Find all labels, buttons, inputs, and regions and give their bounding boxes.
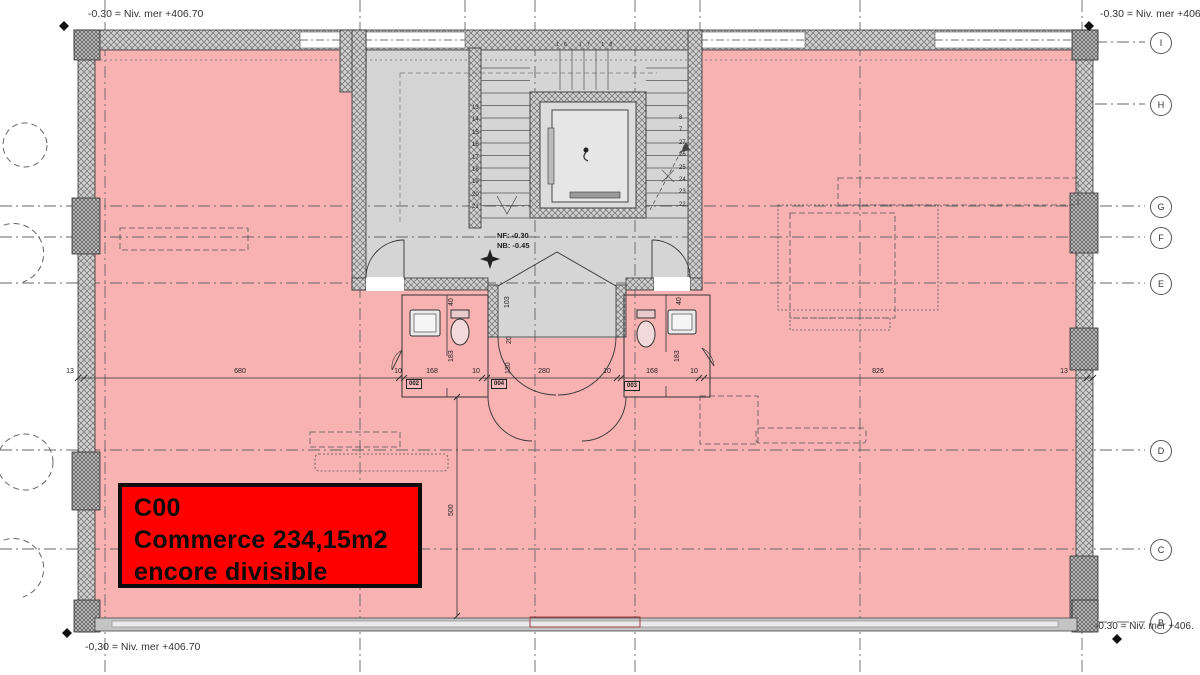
dim-label-v: 183 [674, 350, 681, 362]
floor-plan-canvas: -0.30 = Niv. mer +406.70 -0.30 = Niv. me… [0, 0, 1200, 675]
elevator-shaft [530, 92, 646, 218]
elevation-note-top-right: -0.30 = Niv. mer +406. [1100, 8, 1200, 20]
room-tag-002: 002 [406, 379, 422, 389]
grid-marker-f: F [1150, 227, 1172, 249]
grid-marker-g: G [1150, 196, 1172, 218]
elevation-note-top-left: -0.30 = Niv. mer +406.70 [88, 8, 203, 20]
grid-marker-i: I [1150, 32, 1172, 54]
grid-marker-d: D [1150, 440, 1172, 462]
dim-label-v: 183 [448, 350, 455, 362]
tree-circles [0, 123, 53, 597]
dim-label: 10 [603, 368, 611, 375]
dim-label-v: 500 [448, 504, 455, 516]
dim-label-v: 40 [676, 297, 683, 305]
elevation-note-bottom-left: -0,30 = Niv. mer +406.70 [85, 641, 200, 653]
dim-label: 280 [538, 368, 550, 375]
grid-marker-c: C [1150, 539, 1172, 561]
unit-label-box: C00 Commerce 234,15m2 encore divisible [118, 483, 422, 588]
floor-level-note-nb: NB: -0.45 [497, 241, 530, 250]
dim-label-v: 130 [505, 362, 512, 374]
grid-marker-e: E [1150, 273, 1172, 295]
dim-label-v: 40 [448, 298, 455, 306]
dim-label: 168 [646, 368, 658, 375]
dim-label: 13 [66, 368, 74, 375]
stair-step-numbers-top: 16 17 18 [556, 42, 617, 48]
dim-label-v: 20 [506, 336, 513, 344]
dim-label: 10 [472, 368, 480, 375]
dim-label: 13 [1060, 368, 1068, 375]
room-tag-004: 004 [491, 379, 507, 389]
room-tag-003: 003 [624, 381, 640, 391]
dim-label: 10 [394, 368, 402, 375]
dim-label: 826 [872, 368, 884, 375]
unit-area: Commerce 234,15m2 [134, 524, 406, 556]
dim-label-v: 103 [504, 296, 511, 308]
dim-label: 680 [234, 368, 246, 375]
stair-step-numbers-left: 13 14 15 16 17 18 19 20 21 [472, 102, 479, 214]
grid-marker-h: H [1150, 94, 1172, 116]
dim-label: 10 [690, 368, 698, 375]
floor-level-note-nf: NF: -0.30 [497, 231, 529, 240]
elevation-note-bottom-right: -0.30 = Niv. mer +406. [1095, 621, 1194, 632]
unit-note: encore divisible [134, 556, 406, 588]
stair-step-numbers-right: 8 7 27 26 25 24 23 22 [679, 112, 686, 211]
unit-code: C00 [134, 492, 406, 524]
dim-label: 168 [426, 368, 438, 375]
